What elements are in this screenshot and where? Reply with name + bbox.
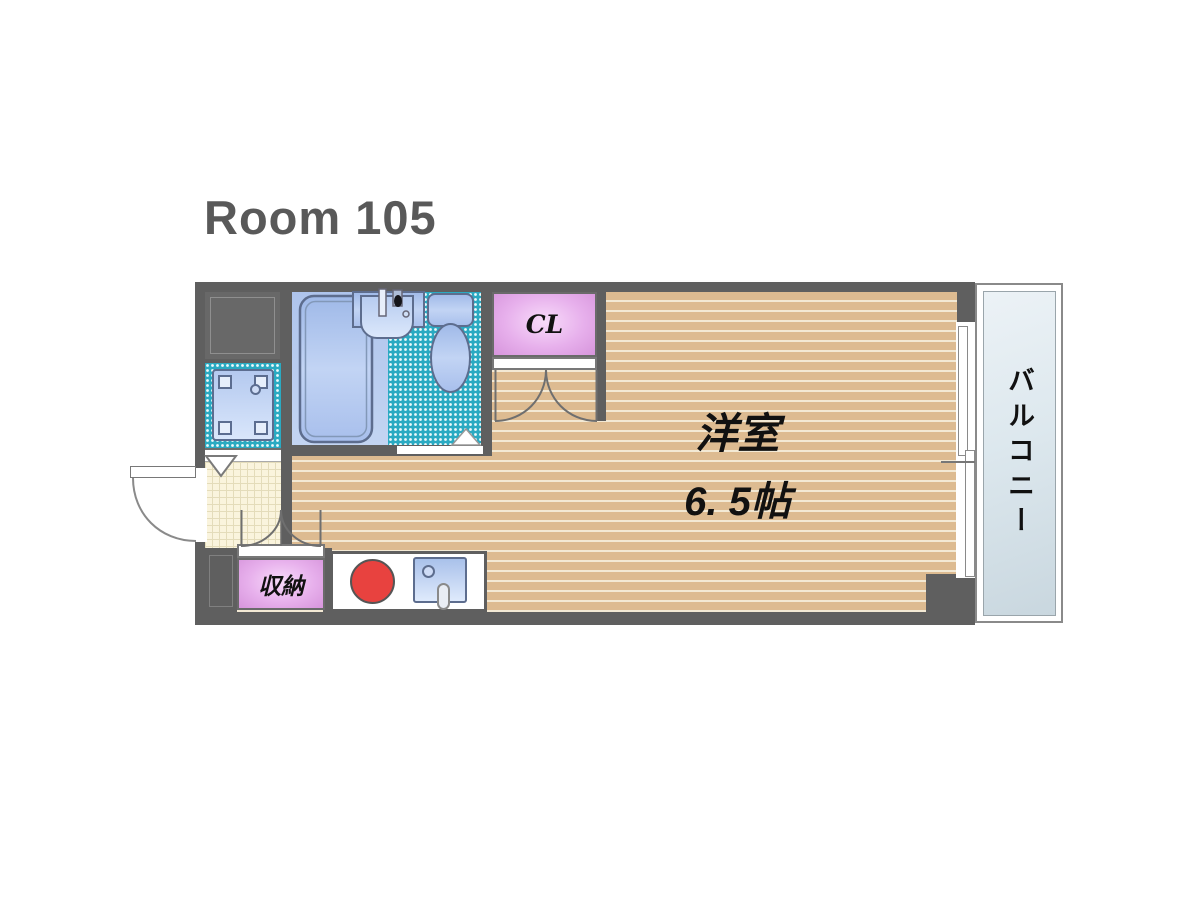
floorplan-canvas: Room 105 CL 収納 bbox=[0, 0, 1200, 900]
closet-door-arc-left bbox=[495, 370, 546, 421]
fixtures-overlay bbox=[0, 0, 1200, 900]
toilet-bowl bbox=[431, 324, 470, 392]
bathroom-step-triangle bbox=[452, 429, 480, 445]
washbasin-faucet-bar bbox=[379, 289, 386, 316]
storage-door-arc-right bbox=[281, 510, 321, 546]
front-door-swing-arc bbox=[133, 478, 196, 541]
closet-door-arc-right bbox=[546, 370, 597, 421]
washbasin-faucet-knob bbox=[394, 295, 402, 307]
toilet-tank bbox=[428, 294, 473, 326]
washbasin-drain-dot bbox=[403, 311, 409, 317]
genkan-step-triangle bbox=[206, 456, 236, 476]
storage-door-arc-left bbox=[241, 510, 281, 546]
